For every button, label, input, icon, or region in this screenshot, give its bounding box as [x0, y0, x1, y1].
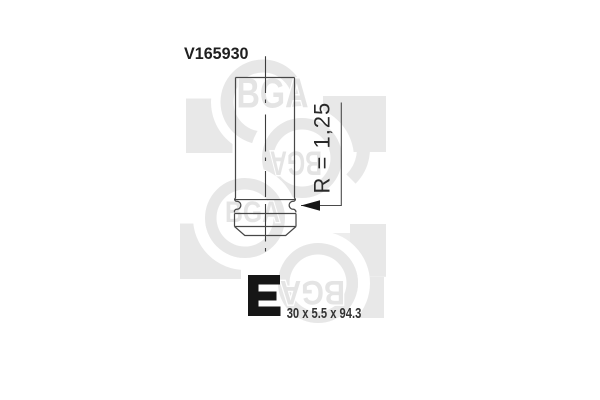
- svg-text:30 x 5.5 x 94.3: 30 x 5.5 x 94.3: [287, 305, 362, 322]
- svg-text:R = 1,25: R = 1,25: [310, 102, 335, 194]
- svg-text:V165930: V165930: [184, 44, 249, 63]
- svg-text:BGA: BGA: [225, 196, 280, 229]
- svg-text:BGA: BGA: [237, 70, 309, 117]
